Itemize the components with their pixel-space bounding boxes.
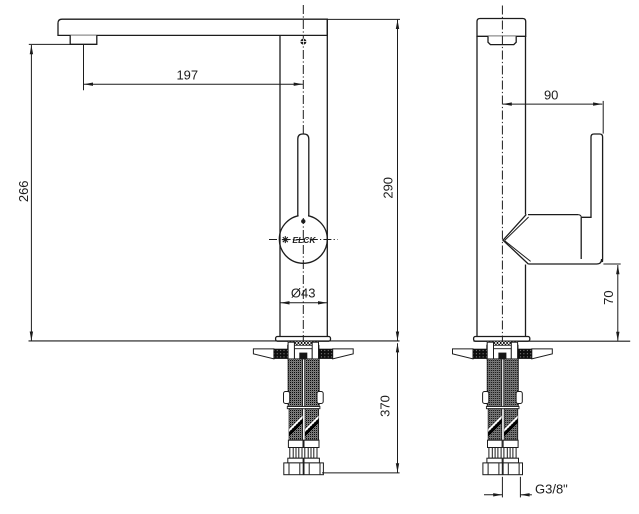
svg-text:290: 290 [380, 177, 395, 199]
svg-text:70: 70 [601, 290, 616, 304]
svg-text:ELCK: ELCK [292, 235, 316, 245]
svg-text:90: 90 [544, 88, 558, 103]
svg-text:Ø43: Ø43 [291, 285, 316, 300]
svg-text:197: 197 [176, 68, 198, 83]
svg-text:G3/8": G3/8" [535, 481, 568, 496]
svg-text:370: 370 [377, 395, 392, 417]
svg-text:266: 266 [16, 180, 31, 202]
